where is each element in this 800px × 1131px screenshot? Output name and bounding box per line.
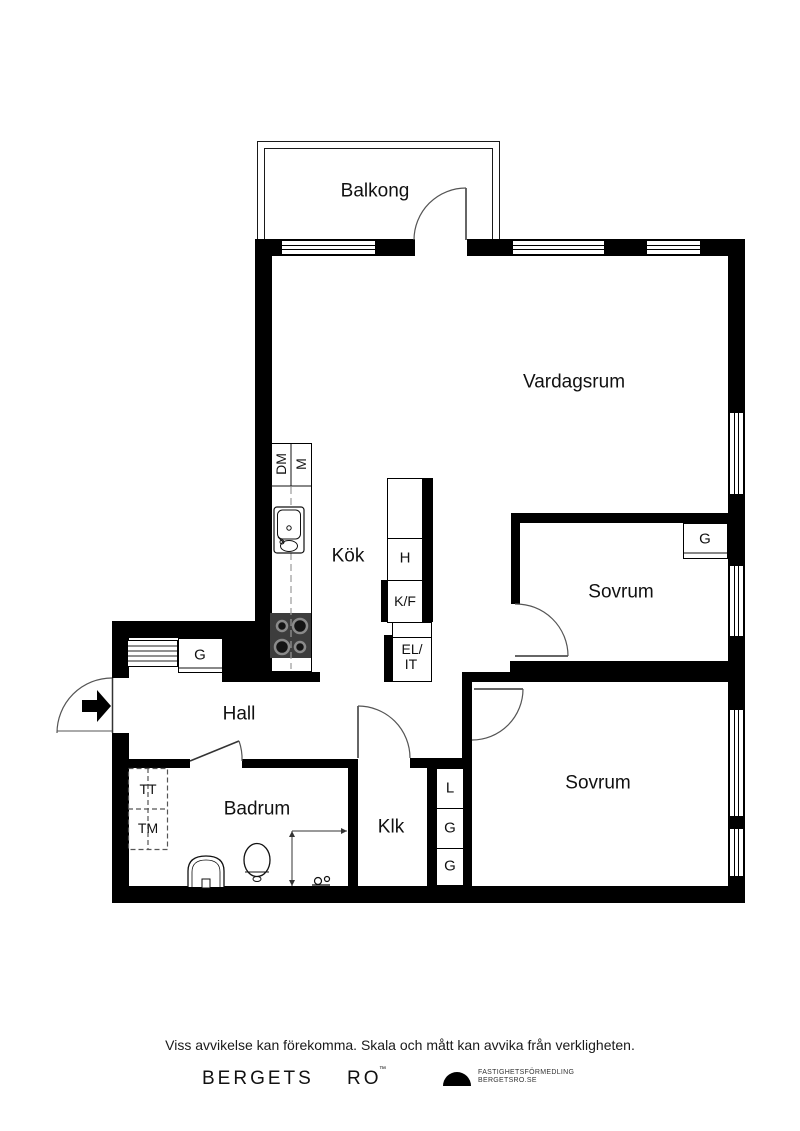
- label-dm: DM: [274, 453, 288, 475]
- sink-symbol: [274, 507, 304, 553]
- label-g-hall: G: [194, 648, 206, 663]
- shelf-lines: [128, 646, 177, 661]
- label-hall: Hall: [223, 705, 256, 724]
- door-leaf: [190, 741, 239, 761]
- label-klk: Klk: [378, 818, 404, 837]
- door-arc: [472, 689, 523, 740]
- label-it: IT: [405, 657, 417, 671]
- label-vardagsrum: Vardagsrum: [523, 373, 625, 392]
- agency-url: BERGETSRO.SE: [478, 1077, 574, 1085]
- label-tt: TT: [139, 782, 156, 796]
- door-arc: [358, 706, 410, 758]
- door-arc: [515, 604, 568, 656]
- label-badrum: Badrum: [224, 800, 291, 819]
- brand-word-bergets: BERGETS: [202, 1068, 314, 1090]
- disclaimer-text: Viss avvikelse kan förekomma. Skala och …: [0, 1037, 800, 1053]
- label-g1: G: [444, 821, 456, 836]
- toilet-symbol: [244, 844, 270, 882]
- shower-arrow: [341, 828, 347, 834]
- label-l: L: [446, 781, 454, 796]
- label-tm: TM: [138, 821, 158, 835]
- agency-name: FASTIGHETSFÖRMEDLING: [478, 1069, 574, 1077]
- label-balkong: Balkong: [341, 182, 410, 201]
- label-h: H: [400, 551, 411, 566]
- label-kf: K/F: [394, 594, 416, 608]
- label-m: M: [294, 458, 308, 470]
- label-kok: Kök: [332, 547, 365, 566]
- brand-word-ro: RO: [347, 1068, 382, 1090]
- entrance-arrow-icon: [82, 690, 111, 722]
- shower-arrow: [289, 880, 295, 886]
- shower-arrow: [289, 831, 295, 837]
- label-el: EL/: [401, 642, 422, 656]
- door-arc: [239, 741, 242, 761]
- door-arc: [414, 188, 466, 240]
- label-sovrum-1: Sovrum: [588, 583, 653, 602]
- agency-text: FASTIGHETSFÖRMEDLING BERGETSRO.SE: [478, 1069, 574, 1085]
- shower-mixer-icon: [312, 877, 330, 886]
- floor-plan: Balkong Vardagsrum Kök Hall Badrum Klk S…: [0, 0, 800, 1131]
- label-g2: G: [444, 859, 456, 874]
- brand-trademark: ™: [379, 1066, 386, 1073]
- label-g-sovrum: G: [699, 532, 711, 547]
- label-sovrum-2: Sovrum: [565, 774, 630, 793]
- washbasin-symbol: [188, 856, 224, 888]
